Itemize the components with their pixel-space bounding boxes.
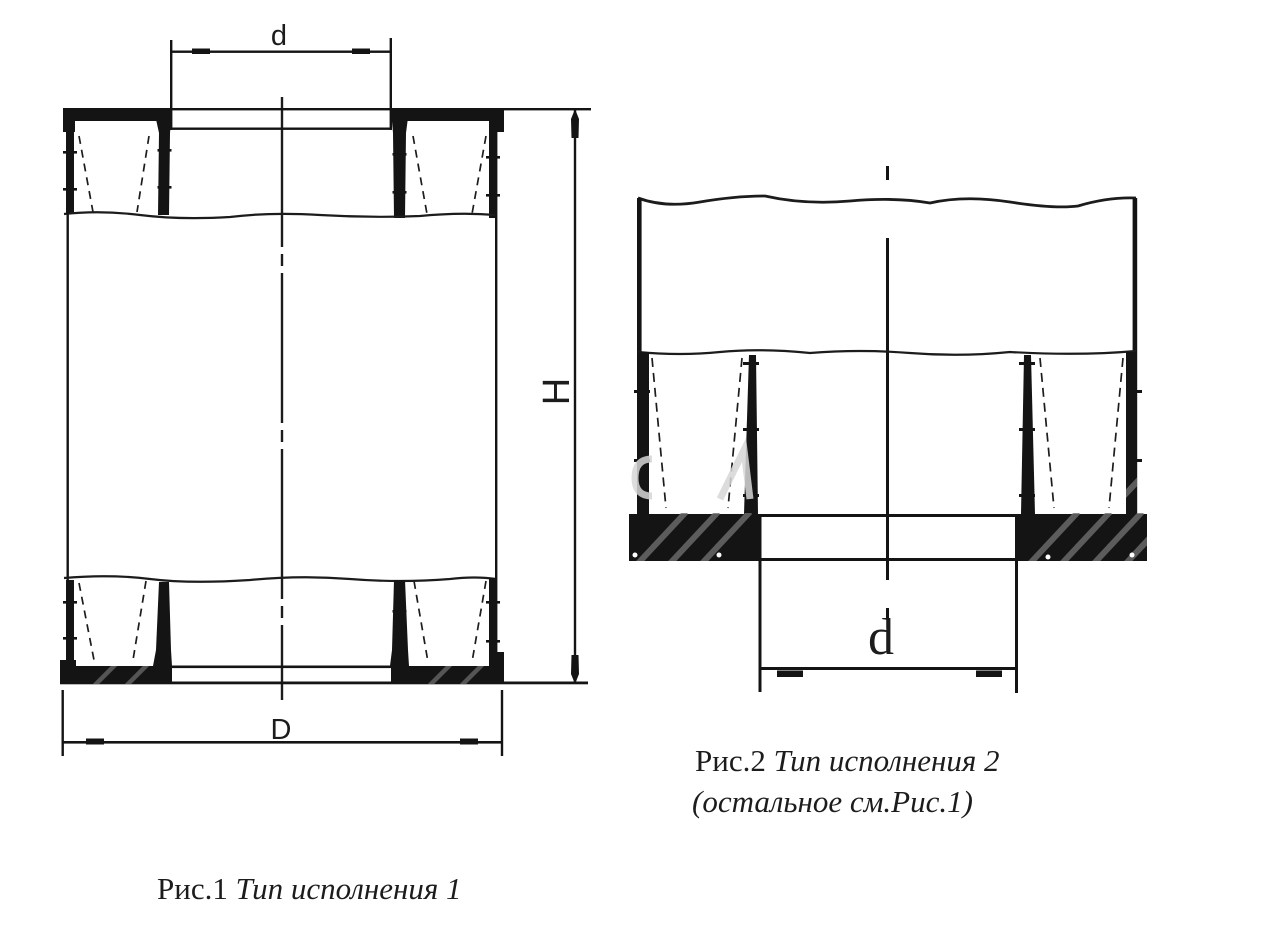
svg-text:d: d xyxy=(271,20,287,52)
svg-text:Рис.2 Тип исполнения 2: Рис.2 Тип исполнения 2 xyxy=(695,743,1000,778)
svg-text:D: D xyxy=(271,714,292,746)
svg-text:H: H xyxy=(536,378,578,405)
svg-text:(остальное см.Рис.1): (остальное см.Рис.1) xyxy=(692,784,973,819)
svg-text:d: d xyxy=(868,609,894,666)
svg-text:Рис.1 Тип исполнения 1: Рис.1 Тип исполнения 1 xyxy=(157,871,462,906)
